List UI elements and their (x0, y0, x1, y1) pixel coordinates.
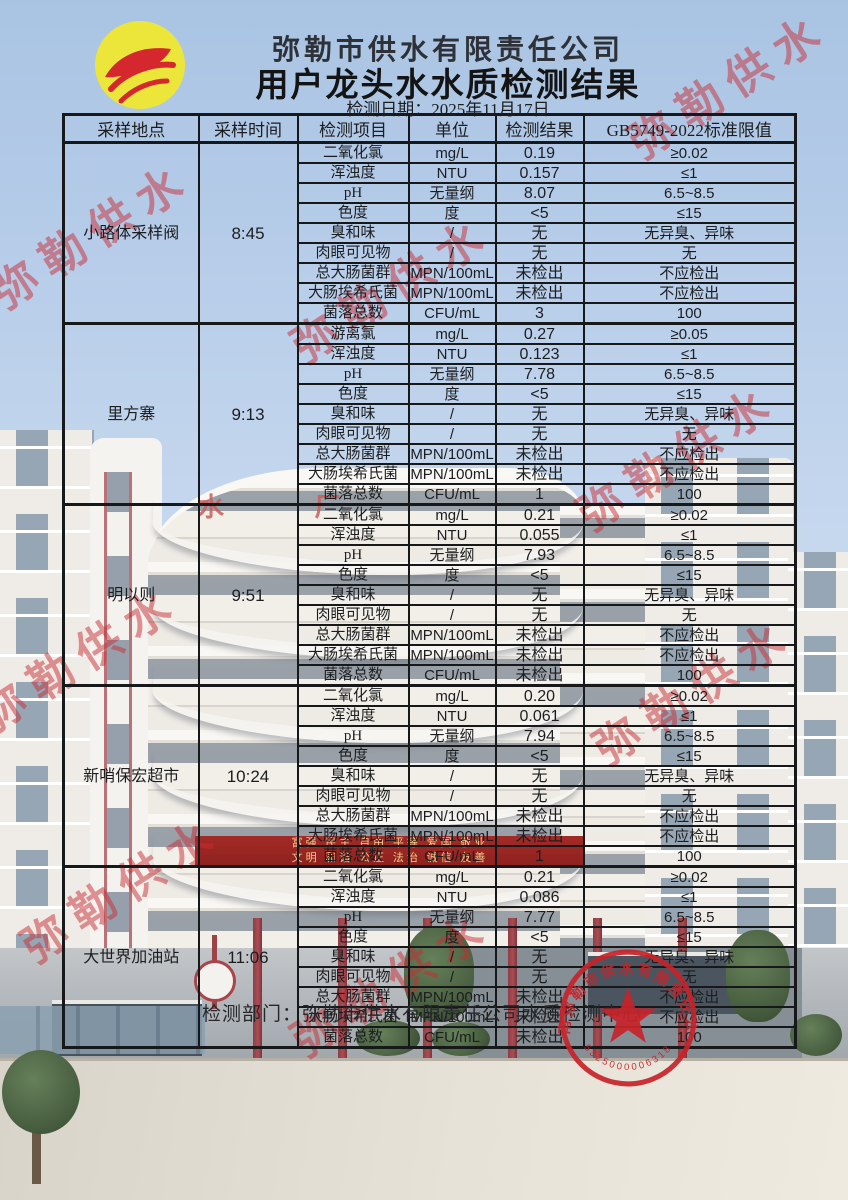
cell-unit: / (409, 766, 496, 786)
cell-location: 新哨保宏超市 (64, 686, 199, 867)
cell-unit: 度 (409, 203, 496, 223)
cell-unit: mg/L (409, 505, 496, 526)
cell-result: <5 (496, 927, 584, 947)
cell-standard: ≤15 (584, 565, 796, 585)
cell-standard: ≤15 (584, 927, 796, 947)
cell-standard: ≥0.05 (584, 324, 796, 345)
cell-item: 二氧化氯 (298, 686, 409, 707)
cell-unit: NTU (409, 706, 496, 726)
cell-item: 大肠埃希氏菌 (298, 826, 409, 846)
cell-unit: MPN/100mL (409, 464, 496, 484)
cell-standard: 无 (584, 424, 796, 444)
cell-unit: mg/L (409, 143, 496, 164)
cell-unit: MPN/100mL (409, 826, 496, 846)
cell-result: 0.19 (496, 143, 584, 164)
cell-item: 菌落总数 (298, 484, 409, 505)
cell-unit: CFU/mL (409, 665, 496, 686)
cell-result: <5 (496, 384, 584, 404)
cell-unit: CFU/mL (409, 303, 496, 324)
cell-unit: 度 (409, 565, 496, 585)
cell-result: 未检出 (496, 826, 584, 846)
cell-standard: 不应检出 (584, 464, 796, 484)
cell-item: 肉眼可见物 (298, 786, 409, 806)
cell-standard: ≥0.02 (584, 686, 796, 707)
cell-result: 7.94 (496, 726, 584, 746)
cell-unit: MPN/100mL (409, 444, 496, 464)
cell-item: 二氧化氯 (298, 143, 409, 164)
cell-standard: 6.5~8.5 (584, 545, 796, 565)
cell-result: 无 (496, 766, 584, 786)
cell-standard: ≤1 (584, 163, 796, 183)
cell-result: <5 (496, 203, 584, 223)
cell-result: 7.78 (496, 364, 584, 384)
cell-result: 0.061 (496, 706, 584, 726)
cell-location: 小路体采样阀 (64, 143, 199, 324)
cell-standard: ≤15 (584, 746, 796, 766)
cell-standard: 不应检出 (584, 806, 796, 826)
cell-unit: mg/L (409, 324, 496, 345)
official-seal: 云南弥勒市供水有限责任公司 5325000006318 (555, 945, 701, 1091)
cell-item: 臭和味 (298, 947, 409, 967)
cell-unit: 度 (409, 927, 496, 947)
cell-unit: CFU/mL (409, 484, 496, 505)
test-date-line: 检测日期：2025年11月17日 (62, 95, 834, 120)
cell-unit: MPN/100mL (409, 806, 496, 826)
table-row: 里方寨9:13游离氯mg/L0.27≥0.05 (64, 324, 796, 345)
table-row: 新哨保宏超市10:24二氧化氯mg/L0.20≥0.02 (64, 686, 796, 707)
cell-item: 浑浊度 (298, 163, 409, 183)
cell-standard: 不应检出 (584, 263, 796, 283)
cell-standard: 无异臭、异味 (584, 404, 796, 424)
cell-item: 大肠埃希氏菌 (298, 645, 409, 665)
seal-star-icon (599, 988, 657, 1043)
cell-result: 未检出 (496, 625, 584, 645)
cell-result: 无 (496, 424, 584, 444)
cell-item: pH (298, 907, 409, 927)
cell-item: 菌落总数 (298, 665, 409, 686)
cell-standard: 无 (584, 243, 796, 263)
cell-unit: NTU (409, 525, 496, 545)
cell-standard: 无 (584, 786, 796, 806)
cell-unit: / (409, 967, 496, 987)
cell-result: <5 (496, 746, 584, 766)
cell-unit: / (409, 243, 496, 263)
cell-standard: 6.5~8.5 (584, 726, 796, 746)
cell-item: 肉眼可见物 (298, 243, 409, 263)
cell-location: 明以则 (64, 505, 199, 686)
cell-item: 总大肠菌群 (298, 263, 409, 283)
cell-standard: 无异臭、异味 (584, 585, 796, 605)
cell-item: 菌落总数 (298, 846, 409, 867)
cell-result: 0.123 (496, 344, 584, 364)
cell-result: 8.07 (496, 183, 584, 203)
cell-item: 总大肠菌群 (298, 806, 409, 826)
cell-unit: 无量纲 (409, 907, 496, 927)
cell-result: 未检出 (496, 645, 584, 665)
cell-standard: 不应检出 (584, 283, 796, 303)
cell-item: 浑浊度 (298, 344, 409, 364)
cell-result: 无 (496, 243, 584, 263)
cell-unit: / (409, 404, 496, 424)
cell-unit: 无量纲 (409, 726, 496, 746)
table-row: 明以则9:51二氧化氯mg/L0.21≥0.02 (64, 505, 796, 526)
cell-standard: 100 (584, 665, 796, 686)
cell-standard: ≤1 (584, 344, 796, 364)
cell-time: 9:13 (199, 324, 298, 505)
table-row: 小路体采样阀8:45二氧化氯mg/L0.19≥0.02 (64, 143, 796, 164)
cell-unit: 无量纲 (409, 183, 496, 203)
cell-item: 菌落总数 (298, 303, 409, 324)
plaza-ground (0, 1058, 848, 1200)
cell-unit: CFU/mL (409, 846, 496, 867)
cell-standard: 无异臭、异味 (584, 223, 796, 243)
cell-item: 浑浊度 (298, 887, 409, 907)
cell-item: 色度 (298, 203, 409, 223)
cell-time: 8:45 (199, 143, 298, 324)
cell-result: 7.77 (496, 907, 584, 927)
cell-unit: MPN/100mL (409, 283, 496, 303)
cell-standard: ≤15 (584, 203, 796, 223)
cell-standard: 6.5~8.5 (584, 183, 796, 203)
cell-standard: 无异臭、异味 (584, 766, 796, 786)
cell-unit: NTU (409, 887, 496, 907)
cell-result: 0.20 (496, 686, 584, 707)
cell-item: 浑浊度 (298, 525, 409, 545)
cell-standard: ≤1 (584, 887, 796, 907)
report-page: 水 厂 富强 民主 自由 平等 爱国 敬业 文明 和谐 公正 法治 诚信 友善 … (0, 0, 848, 1200)
svg-text:5325000006318: 5325000006318 (581, 1042, 674, 1073)
cell-item: 臭和味 (298, 223, 409, 243)
cell-item: 游离氯 (298, 324, 409, 345)
cell-unit: / (409, 585, 496, 605)
cell-result: 3 (496, 303, 584, 324)
cell-unit: MPN/100mL (409, 263, 496, 283)
cell-result: 未检出 (496, 806, 584, 826)
cell-result: 未检出 (496, 263, 584, 283)
water-quality-results-table: 采样地点 采样时间 检测项目 单位 检测结果 GB5749-2022标准限值 小… (62, 113, 797, 1049)
cell-standard: 100 (584, 846, 796, 867)
cell-result: 未检出 (496, 444, 584, 464)
cell-unit: 无量纲 (409, 364, 496, 384)
cell-result: 1 (496, 846, 584, 867)
cell-item: 二氧化氯 (298, 505, 409, 526)
cell-standard: 100 (584, 484, 796, 505)
cell-item: 二氧化氯 (298, 867, 409, 888)
cell-result: 无 (496, 585, 584, 605)
cell-location: 里方寨 (64, 324, 199, 505)
cell-item: pH (298, 183, 409, 203)
cell-item: pH (298, 364, 409, 384)
cell-result: 0.21 (496, 505, 584, 526)
cell-item: 菌落总数 (298, 1027, 409, 1048)
cell-unit: MPN/100mL (409, 625, 496, 645)
cell-standard: 6.5~8.5 (584, 364, 796, 384)
cell-standard: 不应检出 (584, 826, 796, 846)
cell-standard: ≥0.02 (584, 505, 796, 526)
cell-unit: MPN/100mL (409, 645, 496, 665)
cell-item: 大肠埃希氏菌 (298, 464, 409, 484)
cell-time: 10:24 (199, 686, 298, 867)
cell-unit: CFU/mL (409, 1027, 496, 1048)
table-row: 大世界加油站11:06二氧化氯mg/L0.21≥0.02 (64, 867, 796, 888)
cell-result: 无 (496, 786, 584, 806)
cell-result: 未检出 (496, 283, 584, 303)
cell-item: 浑浊度 (298, 706, 409, 726)
cell-unit: mg/L (409, 686, 496, 707)
cell-result: 未检出 (496, 464, 584, 484)
cell-unit: / (409, 786, 496, 806)
seal-number-arc-text: 5325000006318 (581, 1042, 674, 1073)
cell-result: 未检出 (496, 665, 584, 686)
cell-item: 肉眼可见物 (298, 605, 409, 625)
cell-unit: / (409, 947, 496, 967)
cell-item: 臭和味 (298, 585, 409, 605)
cell-standard: 不应检出 (584, 444, 796, 464)
cell-item: 色度 (298, 927, 409, 947)
cell-time: 9:51 (199, 505, 298, 686)
cell-item: 总大肠菌群 (298, 444, 409, 464)
cell-standard: 不应检出 (584, 625, 796, 645)
cell-result: 1 (496, 484, 584, 505)
cell-item: 臭和味 (298, 404, 409, 424)
cell-standard: ≤15 (584, 384, 796, 404)
cell-unit: / (409, 424, 496, 444)
cell-result: 0.157 (496, 163, 584, 183)
cell-standard: ≥0.02 (584, 867, 796, 888)
cell-unit: / (409, 605, 496, 625)
cell-unit: / (409, 223, 496, 243)
cell-result: <5 (496, 565, 584, 585)
cell-unit: NTU (409, 163, 496, 183)
cell-item: 色度 (298, 565, 409, 585)
cell-standard: ≥0.02 (584, 143, 796, 164)
results-table-body: 小路体采样阀8:45二氧化氯mg/L0.19≥0.02浑浊度NTU0.157≤1… (64, 143, 796, 1048)
cell-result: 0.055 (496, 525, 584, 545)
cell-standard: ≤1 (584, 525, 796, 545)
cell-item: 臭和味 (298, 766, 409, 786)
cell-standard: ≤1 (584, 706, 796, 726)
cell-item: 色度 (298, 746, 409, 766)
cell-unit: mg/L (409, 867, 496, 888)
cell-result: 0.21 (496, 867, 584, 888)
cell-item: pH (298, 545, 409, 565)
cell-standard: 100 (584, 303, 796, 324)
cell-standard: 不应检出 (584, 645, 796, 665)
cell-result: 0.27 (496, 324, 584, 345)
cell-item: 总大肠菌群 (298, 625, 409, 645)
cell-unit: 度 (409, 746, 496, 766)
hedge (790, 1014, 842, 1056)
cell-item: pH (298, 726, 409, 746)
cell-result: 无 (496, 605, 584, 625)
cell-item: 色度 (298, 384, 409, 404)
cell-standard: 6.5~8.5 (584, 907, 796, 927)
cell-result: 无 (496, 404, 584, 424)
cell-unit: 度 (409, 384, 496, 404)
cell-item: 肉眼可见物 (298, 967, 409, 987)
cell-result: 0.086 (496, 887, 584, 907)
tree-canopy (2, 1050, 80, 1134)
cell-result: 无 (496, 223, 584, 243)
cell-unit: 无量纲 (409, 545, 496, 565)
cell-unit: NTU (409, 344, 496, 364)
cell-result: 7.93 (496, 545, 584, 565)
cell-item: 大肠埃希氏菌 (298, 283, 409, 303)
cell-item: 肉眼可见物 (298, 424, 409, 444)
cell-standard: 无 (584, 605, 796, 625)
